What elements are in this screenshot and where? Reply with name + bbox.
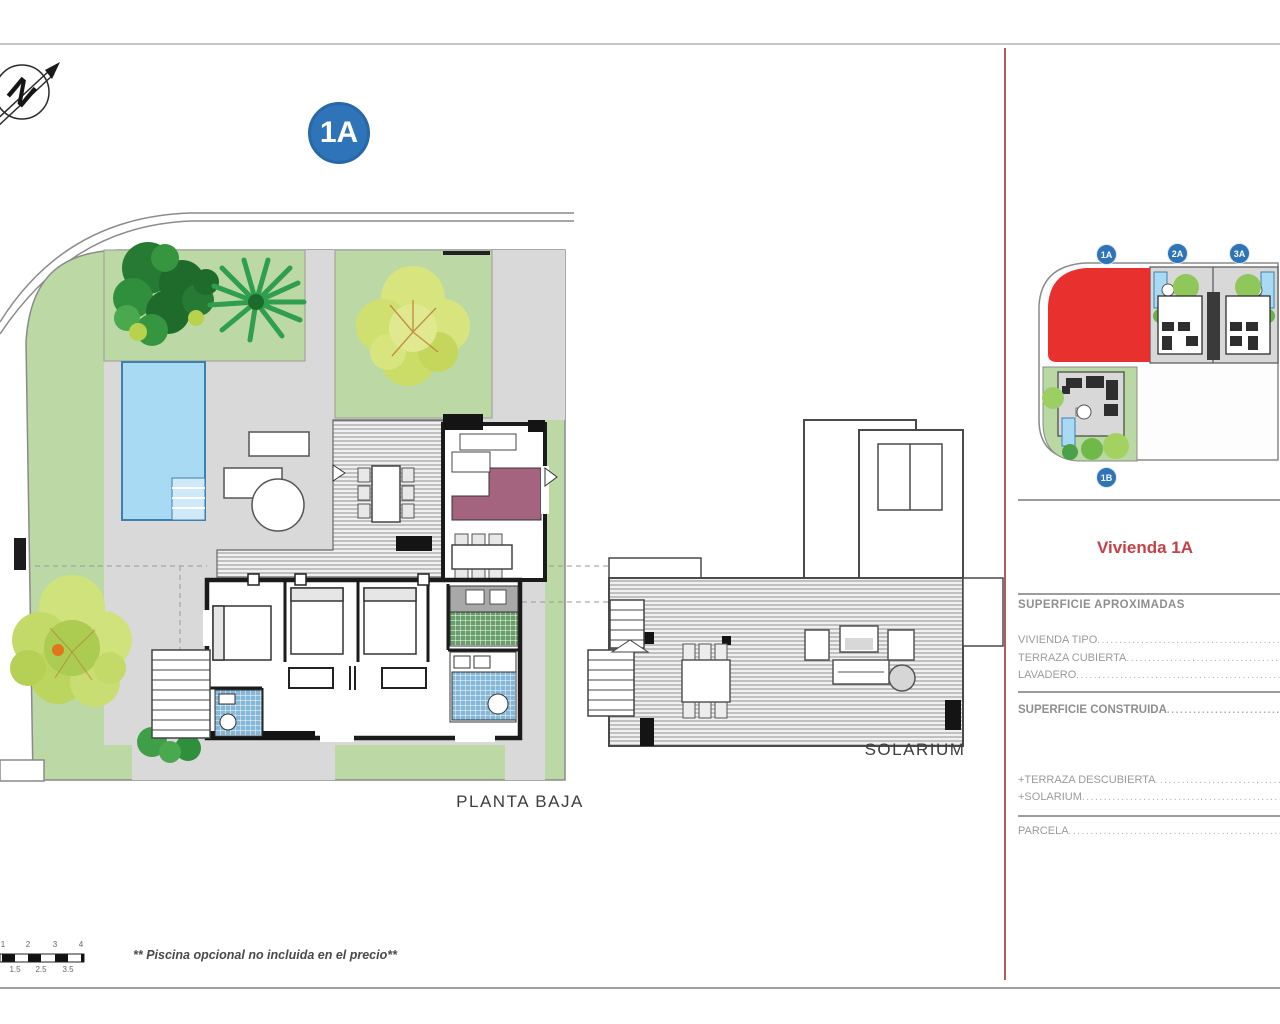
row-terraza-cubierta: TERRAZA CUBIERTA (1018, 652, 1280, 666)
row-label: +TERRAZA DESCUBIERTA (1018, 774, 1155, 786)
ground-floor-label: PLANTA BAJA (450, 792, 590, 812)
row-terraza-descubierta: +TERRAZA DESCUBIERTA (1018, 774, 1280, 788)
scale-bar (0, 954, 84, 962)
row-lavadero: LAVADERO (1018, 669, 1280, 683)
row-label: +SOLARIUM (1018, 791, 1082, 803)
site-plan (1039, 263, 1278, 461)
deck-dining-set (682, 644, 730, 718)
plan-drawing: N (0, 0, 1280, 1024)
solarium-deck (609, 578, 963, 746)
dotted-leader (1076, 670, 1280, 681)
north-arrow-icon: N (0, 62, 60, 128)
panel-rule (1018, 499, 1280, 501)
panel-rule (1018, 691, 1280, 693)
surface-approx-header: SUPERFICIE APROXIMADAS (1018, 599, 1185, 611)
dotted-leader (1155, 775, 1280, 786)
row-label: TERRAZA CUBIERTA (1018, 652, 1126, 664)
site-badge-3a: 3A (1229, 243, 1250, 264)
dotted-leader (1082, 792, 1280, 803)
exterior-stairs (152, 650, 210, 738)
panel-rule (1018, 593, 1280, 595)
solarium-plan (588, 420, 1003, 746)
site-badge-2a: 2A (1167, 243, 1188, 264)
pool-disclaimer: ** Piscina opcional no incluida en el pr… (133, 948, 397, 962)
panel-rule (1018, 815, 1280, 817)
svg-text:N: N (0, 70, 43, 115)
outdoor-dining-set (358, 466, 414, 522)
scale-tick-label: 3 (47, 941, 63, 949)
site-badge-1a: 1A (1096, 244, 1117, 265)
ground-floor-plan (0, 213, 608, 781)
dotted-leader (1126, 653, 1280, 664)
scale-tick-label: 2 (20, 941, 36, 949)
bathroom (450, 652, 516, 722)
solarium-label: SOLARIUM (855, 740, 975, 760)
scale-tick-label: 3.5 (60, 966, 76, 974)
bathroom (215, 690, 262, 736)
driveway (0, 760, 44, 781)
scale-tick-label: 1.5 (7, 966, 23, 974)
row-label: SUPERFICIE CONSTRUIDA (1018, 704, 1167, 716)
dotted-leader (1097, 635, 1280, 646)
row-vivienda-tipo: VIVIENDA TIPO (1018, 634, 1280, 648)
floorplan-sheet: N (0, 0, 1280, 1024)
kitchen (450, 586, 518, 646)
pool (122, 362, 205, 520)
dotted-leader (1167, 705, 1280, 716)
row-label: PARCELA (1018, 825, 1069, 837)
unit-1a-highlight (1048, 268, 1150, 362)
dotted-leader (1069, 826, 1280, 837)
row-superficie-construida: SUPERFICIE CONSTRUIDA (1018, 704, 1280, 718)
row-label: LAVADERO (1018, 669, 1076, 681)
site-badge-1b: 1B (1096, 467, 1117, 488)
scale-tick-label: 1 (0, 941, 11, 949)
scale-tick-label: 4 (73, 941, 89, 949)
panel-title: Vivienda 1A (1018, 538, 1272, 558)
coffee-table (452, 452, 490, 472)
gate (14, 538, 26, 570)
sheet-badge: 1A (308, 102, 370, 164)
row-label: VIVIENDA TIPO (1018, 634, 1097, 646)
row-parcela: PARCELA (1018, 825, 1280, 839)
scale-tick-label: 2.5 (33, 966, 49, 974)
row-solarium: +SOLARIUM (1018, 791, 1280, 805)
